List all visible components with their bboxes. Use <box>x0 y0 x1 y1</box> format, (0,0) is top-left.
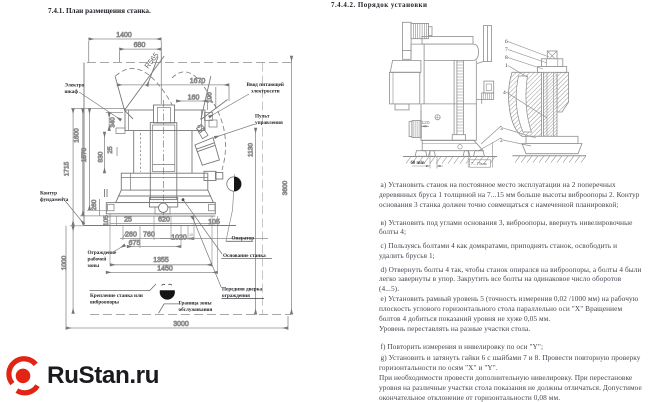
svg-text:шкаф: шкаф <box>65 88 79 95</box>
svg-text:электросети: электросети <box>251 89 280 95</box>
svg-text:680: 680 <box>134 42 146 49</box>
svg-text:Основание станка: Основание станка <box>223 253 266 259</box>
svg-text:зоны: зоны <box>88 263 100 269</box>
svg-text:1450: 1450 <box>157 266 173 273</box>
svg-text:7: 7 <box>505 47 508 53</box>
svg-text:7...15мм: 7...15мм <box>471 161 487 166</box>
svg-text:Граница зоны: Граница зоны <box>179 301 212 307</box>
svg-text:Крепление станка или: Крепление станка или <box>90 293 143 299</box>
svg-text:160: 160 <box>188 95 200 102</box>
svg-text:260: 260 <box>91 199 98 210</box>
svg-text:260: 260 <box>125 232 137 239</box>
svg-text:обслуживания: обслуживания <box>179 306 213 313</box>
svg-text:1715: 1715 <box>64 161 71 176</box>
svg-text:Оператор: Оператор <box>232 235 255 241</box>
svg-text:25: 25 <box>124 217 132 224</box>
svg-text:4: 4 <box>503 90 506 96</box>
svg-text:1570: 1570 <box>81 147 88 162</box>
svg-text:6: 6 <box>505 39 508 45</box>
svg-text:8: 8 <box>505 55 508 61</box>
svg-text:виброопоры: виброопоры <box>90 299 119 306</box>
svg-text:рабочей: рабочей <box>88 256 107 263</box>
svg-text:60 min: 60 min <box>411 161 425 166</box>
svg-text:Ограждение: Ограждение <box>88 250 118 256</box>
svg-text:3000: 3000 <box>173 321 189 328</box>
svg-text:1000: 1000 <box>61 255 68 270</box>
svg-text:Ввод питающей: Ввод питающей <box>247 81 284 88</box>
svg-text:1600: 1600 <box>74 128 81 143</box>
svg-text:830: 830 <box>98 151 105 162</box>
svg-text:620: 620 <box>158 217 170 224</box>
svg-text:3600: 3600 <box>282 180 289 195</box>
svg-text:1130: 1130 <box>248 143 255 157</box>
svg-text:1: 1 <box>505 63 508 69</box>
svg-text:340: 340 <box>110 117 117 128</box>
svg-text:Передняя дверка: Передняя дверка <box>222 287 263 293</box>
svg-text:3: 3 <box>500 126 503 132</box>
svg-text:1355: 1355 <box>153 257 169 264</box>
svg-text:760: 760 <box>143 232 155 239</box>
svg-text:Электро: Электро <box>65 83 85 89</box>
svg-text:1670: 1670 <box>190 78 206 85</box>
svg-text:675: 675 <box>129 240 141 247</box>
svg-text:Контур: Контур <box>40 191 57 197</box>
svg-text:управления: управления <box>255 120 283 126</box>
svg-text:R565: R565 <box>143 51 161 70</box>
svg-text:1400: 1400 <box>116 32 132 39</box>
svg-text:2: 2 <box>500 138 503 144</box>
svg-text:120: 120 <box>421 120 429 126</box>
svg-text:25: 25 <box>107 146 114 154</box>
svg-text:Пульт: Пульт <box>255 114 270 120</box>
svg-text:1020: 1020 <box>171 235 187 242</box>
svg-text:105: 105 <box>208 219 220 226</box>
svg-text:20: 20 <box>189 237 193 241</box>
